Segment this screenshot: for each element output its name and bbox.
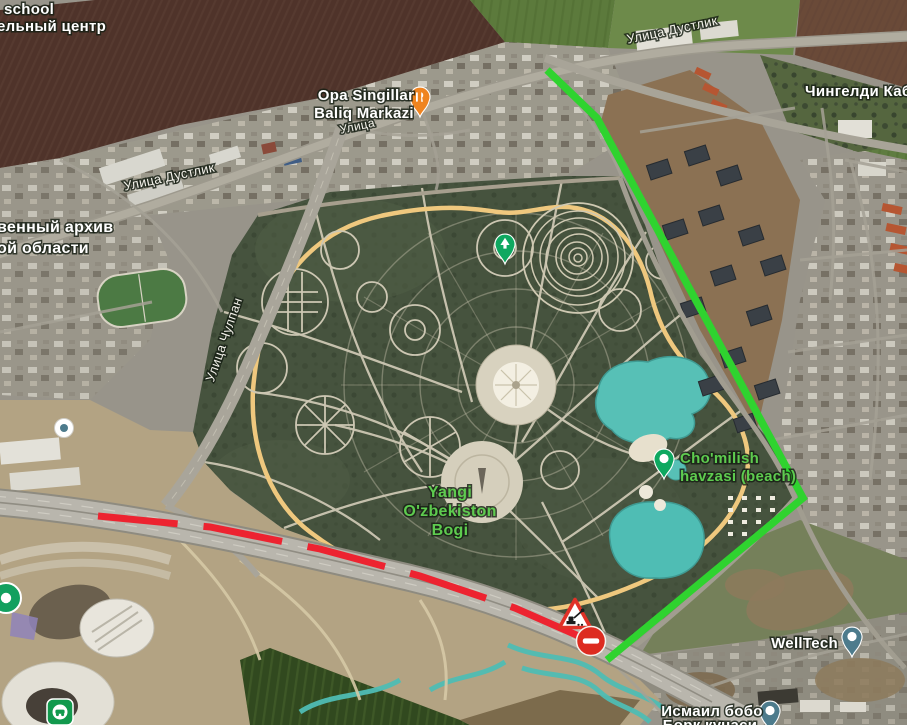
map-label-archive-line2[interactable]: ой области <box>0 240 89 257</box>
map-label-school[interactable]: school <box>4 1 54 18</box>
left-green-pin[interactable] <box>0 583 21 613</box>
car-service-icon[interactable] <box>47 699 73 725</box>
map-label-beach-line2[interactable]: havzasi (beach) <box>680 468 796 485</box>
map-label-yangi-park-line1[interactable]: Yangi <box>428 484 472 501</box>
map-canvas[interactable]: schoolельный центрOpa SingillarBaliq Mar… <box>0 0 907 725</box>
satellite-map: schoolельный центрOpa SingillarBaliq Mar… <box>0 0 907 725</box>
map-label-yangi-park-line3[interactable]: Bogi <box>432 522 469 539</box>
central-monument <box>476 345 556 425</box>
map-label-welltech[interactable]: WellTech <box>771 635 838 652</box>
map-label-ismail-bobo-line2[interactable]: Борк кучаси <box>663 717 758 725</box>
map-label-opa-singillar-line1[interactable]: Opa Singillar <box>318 87 414 104</box>
map-label-beach-line1[interactable]: Cho'milish <box>680 450 759 467</box>
school-poi-pin[interactable] <box>55 419 74 438</box>
map-label-archive-line1[interactable]: венный архив <box>0 219 113 236</box>
no-entry-sign <box>577 627 606 656</box>
map-label-training-center[interactable]: ельный центр <box>0 18 106 35</box>
map-label-chingeldi-kabri[interactable]: Чингелди Кабри <box>805 83 907 100</box>
map-label-yangi-park-line2[interactable]: O'zbekiston <box>403 503 496 520</box>
